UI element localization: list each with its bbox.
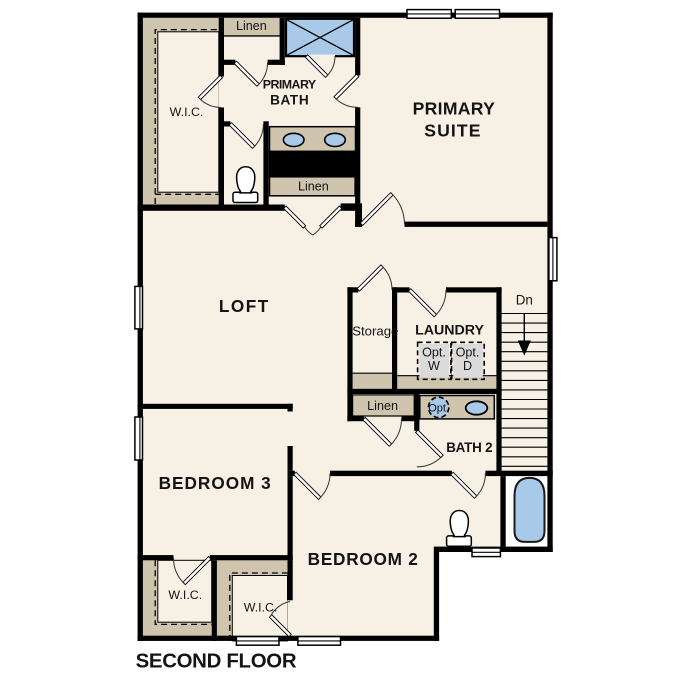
svg-text:BATH 2: BATH 2	[446, 440, 492, 455]
svg-text:D: D	[463, 359, 472, 373]
svg-text:Linen: Linen	[367, 399, 398, 413]
svg-text:SUITE: SUITE	[424, 120, 481, 140]
svg-text:BEDROOM 3: BEDROOM 3	[159, 473, 272, 493]
svg-text:LOFT: LOFT	[219, 296, 270, 316]
svg-text:Linen: Linen	[298, 180, 329, 194]
svg-text:Opt.: Opt.	[428, 402, 449, 414]
svg-text:PRIMARY: PRIMARY	[263, 78, 317, 92]
svg-text:Linen: Linen	[236, 19, 267, 33]
svg-text:SECOND FLOOR: SECOND FLOOR	[136, 651, 297, 673]
svg-text:Storage: Storage	[352, 324, 398, 339]
svg-text:W.I.C.: W.I.C.	[168, 588, 202, 602]
svg-text:Opt.: Opt.	[422, 345, 446, 359]
svg-text:Dn: Dn	[516, 293, 533, 308]
svg-text:W: W	[428, 359, 440, 373]
svg-text:BATH: BATH	[270, 92, 309, 107]
svg-text:W.I.C.: W.I.C.	[170, 105, 204, 119]
svg-text:W.I.C.: W.I.C.	[244, 601, 278, 615]
svg-text:PRIMARY: PRIMARY	[413, 98, 496, 118]
svg-text:Opt.: Opt.	[456, 345, 480, 359]
svg-text:BEDROOM 2: BEDROOM 2	[308, 549, 419, 569]
svg-text:LAUNDRY: LAUNDRY	[415, 323, 484, 339]
